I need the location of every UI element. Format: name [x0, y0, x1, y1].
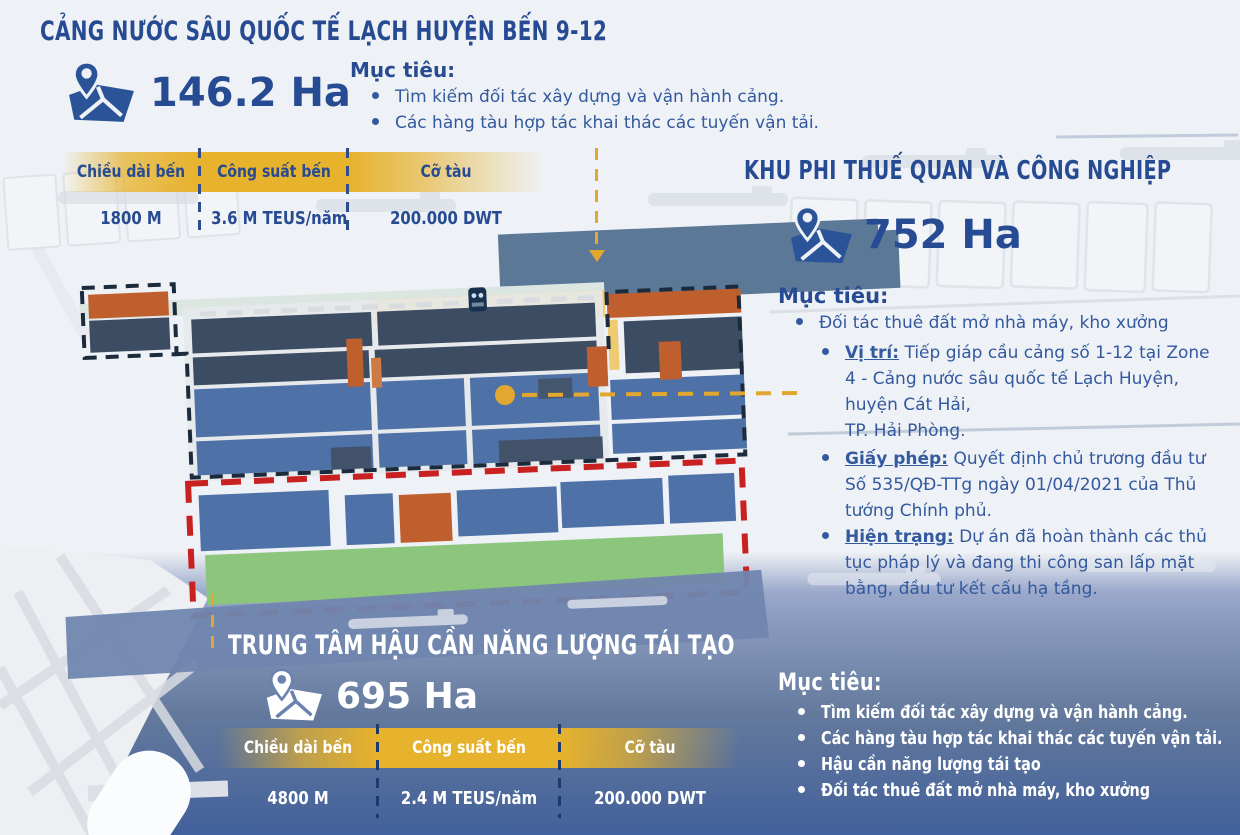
- logistics-objective: Đối tác thuê đất mở nhà máy, kho xưởng: [821, 778, 1150, 804]
- list-item: Tìm kiếm đối tác xây dựng và vận hành cả…: [798, 700, 1240, 726]
- detail-item-license: Giấy phép: Quyết định chủ trương đầu tư …: [822, 446, 1222, 524]
- port-section-title: CẢNG NƯỚC SÂU QUỐC TẾ LẠCH HUYỆN BẾN 9-1…: [40, 16, 607, 47]
- freezone-objectives-heading: Mục tiêu:: [778, 284, 888, 308]
- port-spec-table: Chiều dài bến Công suất bến Cỡ tàu 1800 …: [62, 152, 544, 244]
- logistics-section-title: TRUNG TÂM HẬU CẦN NĂNG LƯỢNG TÁI TẠO: [228, 630, 735, 661]
- map-pin-icon: [788, 205, 854, 267]
- logistics-objective: Tìm kiếm đối tác xây dựng và vận hành cả…: [821, 700, 1188, 726]
- bullet-icon: [822, 454, 829, 461]
- detail-label: Hiện trạng:: [845, 527, 954, 547]
- port-area-value: 146.2 Ha: [150, 70, 351, 116]
- column-header: Cỡ tàu: [574, 728, 727, 768]
- port-objective: Các hàng tàu hợp tác khai thác các tuyến…: [395, 110, 819, 136]
- logistics-area-value: 695 Ha: [336, 676, 478, 717]
- bullet-icon: [798, 760, 805, 767]
- table-value: 200.000 DWT: [574, 784, 727, 814]
- table-value: 3.6 M TEUS/năm: [211, 204, 337, 234]
- bullet-icon: [822, 348, 829, 355]
- connector-dot: [495, 385, 515, 405]
- list-item: Tìm kiếm đối tác xây dựng và vận hành cả…: [372, 84, 784, 110]
- freezone-area-value: 752 Ha: [864, 212, 1022, 258]
- column-header: Chiều dài bến: [230, 728, 366, 768]
- list-item: Các hàng tàu hợp tác khai thác các tuyến…: [372, 110, 819, 136]
- table-value: 1800 M: [72, 204, 189, 234]
- list-item: Đối tác thuê đất mở nhà máy, kho xưởng: [798, 778, 1232, 804]
- table-value: 2.4 M TEUS/năm: [392, 784, 547, 814]
- map-pin-icon: [66, 60, 136, 126]
- detail-label: Giấy phép:: [845, 449, 948, 469]
- list-item: Các hàng tàu hợp tác khai thác các tuyến…: [798, 726, 1240, 752]
- connector-vertical-top: [595, 148, 598, 250]
- connector-arrowhead: [589, 250, 605, 262]
- column-header: Công suất bến: [211, 152, 337, 192]
- freezone-section-title: KHU PHI THUẾ QUAN VÀ CÔNG NGHIỆP: [744, 156, 1171, 186]
- detail-item-status: Hiện trạng: Dự án đã hoàn thành các thủ …: [822, 524, 1222, 602]
- freezone-objective: Đối tác thuê đất mở nhà máy, kho xưởng: [819, 310, 1169, 336]
- bullet-icon: [372, 118, 379, 125]
- train-icon: [468, 287, 487, 312]
- table-value: 200.000 DWT: [363, 204, 530, 234]
- logistics-objectives-heading: Mục tiêu:: [778, 668, 882, 696]
- top-right-divider-line: [1056, 135, 1238, 137]
- connector-vertical-bottom: [211, 594, 214, 654]
- map-pin-icon: [264, 668, 324, 724]
- bullet-icon: [798, 708, 805, 715]
- logistics-spec-table: Chiều dài bến Công suất bến Cỡ tàu 4800 …: [218, 728, 740, 824]
- bullet-icon: [798, 786, 805, 793]
- bullet-icon: [796, 318, 803, 325]
- list-item: Đối tác thuê đất mở nhà máy, kho xưởng: [796, 310, 1169, 336]
- table-separator: [376, 724, 379, 818]
- port-objective: Tìm kiếm đối tác xây dựng và vận hành cả…: [395, 84, 784, 110]
- column-header: Chiều dài bến: [72, 152, 189, 192]
- logistics-objective: Hậu cần năng lượng tái tạo: [821, 752, 1041, 778]
- port-objectives-heading: Mục tiêu:: [350, 58, 455, 82]
- table-separator: [198, 148, 201, 236]
- column-header: Công suất bến: [392, 728, 547, 768]
- table-value: 4800 M: [230, 784, 366, 814]
- logistics-objective: Các hàng tàu hợp tác khai thác các tuyến…: [821, 726, 1222, 752]
- bullet-icon: [822, 532, 829, 539]
- column-header: Cỡ tàu: [363, 152, 530, 192]
- infographic-page: CẢNG NƯỚC SÂU QUỐC TẾ LẠCH HUYỆN BẾN 9-1…: [0, 0, 1240, 835]
- detail-label: Vị trí:: [845, 343, 899, 363]
- detail-text: Tiếp giáp cầu cảng số 1-12 tại Zone 4 - …: [845, 343, 1210, 441]
- bullet-icon: [372, 92, 379, 99]
- bullet-icon: [798, 734, 805, 741]
- list-item: Hậu cần năng lượng tái tạo: [798, 752, 1096, 778]
- detail-item-location: Vị trí: Tiếp giáp cầu cảng số 1-12 tại Z…: [822, 340, 1222, 444]
- table-separator: [558, 724, 561, 818]
